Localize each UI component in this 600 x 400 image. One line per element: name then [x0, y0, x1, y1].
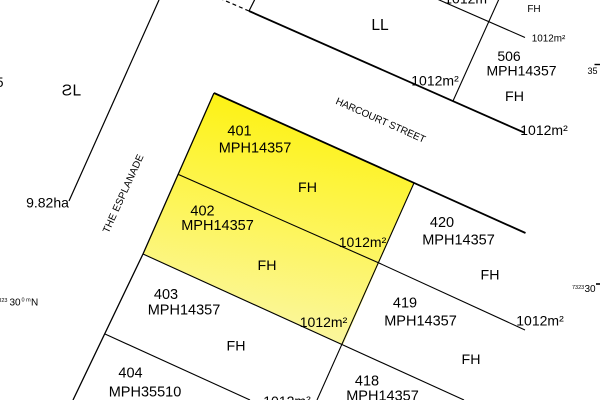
svg-text:7323: 7323 — [572, 285, 584, 291]
svg-text:FH: FH — [298, 180, 317, 196]
svg-text:419: 419 — [393, 296, 417, 312]
svg-text:1012m²: 1012m² — [520, 122, 568, 138]
svg-text:1012m²: 1012m² — [300, 314, 348, 330]
svg-text:MPH14357: MPH14357 — [384, 314, 457, 330]
svg-text:7323: 7323 — [0, 298, 7, 304]
svg-text:MPH14357: MPH14357 — [181, 218, 254, 234]
svg-text:MPH14357: MPH14357 — [486, 63, 556, 79]
svg-text:MPH14357: MPH14357 — [148, 303, 221, 319]
svg-text:FH: FH — [258, 258, 277, 274]
svg-text:404: 404 — [118, 366, 142, 382]
svg-text:420: 420 — [430, 215, 454, 231]
svg-text:0 m: 0 m — [22, 298, 32, 304]
svg-text:1012m²: 1012m² — [263, 393, 311, 400]
svg-text:FH: FH — [227, 339, 246, 355]
svg-text:MPH14357: MPH14357 — [422, 233, 495, 249]
svg-text:MPH35510: MPH35510 — [109, 385, 182, 400]
svg-text:30: 30 — [585, 284, 597, 295]
svg-text:418: 418 — [355, 374, 379, 390]
svg-text:MPH14357: MPH14357 — [346, 389, 419, 400]
svg-text:N: N — [31, 298, 38, 309]
svg-text:LL: LL — [371, 17, 389, 34]
svg-text:1012m²: 1012m² — [339, 234, 387, 250]
svg-text:S: S — [62, 83, 72, 100]
svg-text:FH: FH — [462, 352, 481, 368]
svg-text:1012m²: 1012m² — [516, 313, 564, 329]
svg-text:403: 403 — [154, 287, 178, 303]
svg-text:FH: FH — [481, 268, 500, 284]
svg-text:35: 35 — [588, 66, 598, 76]
svg-text:FH: FH — [505, 89, 524, 105]
svg-text:401: 401 — [227, 124, 251, 140]
svg-text:FH: FH — [527, 4, 540, 15]
svg-text:30: 30 — [10, 298, 22, 309]
svg-text:MPH14357: MPH14357 — [219, 141, 292, 157]
svg-text:35: 35 — [0, 75, 4, 90]
svg-text:9.82ha: 9.82ha — [26, 195, 69, 211]
svg-text:1012m²: 1012m² — [532, 33, 566, 44]
svg-text:1012m²: 1012m² — [411, 73, 459, 89]
svg-text:1012m²: 1012m² — [444, 0, 492, 7]
svg-text:L: L — [73, 83, 82, 100]
